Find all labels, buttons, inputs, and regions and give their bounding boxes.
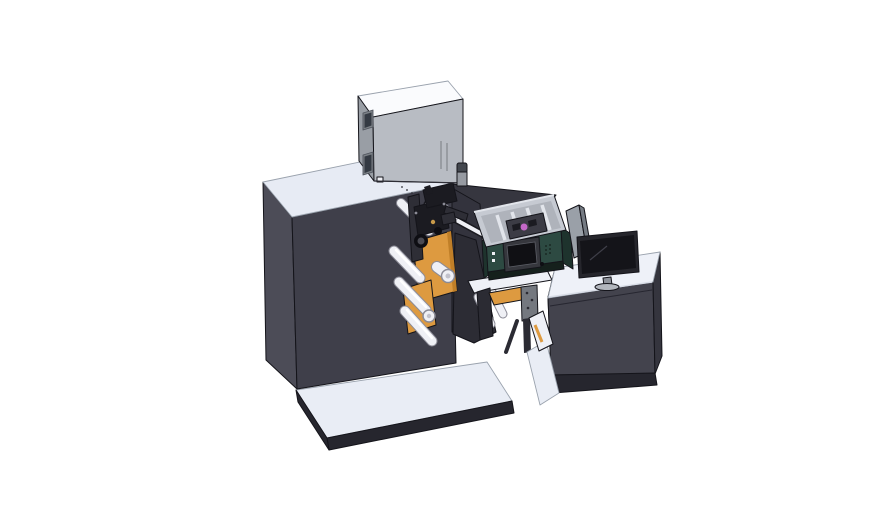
cabinet-window-glass-upper [365, 113, 372, 129]
mech-roller-hub [434, 227, 442, 235]
exhaust-cylinder-body [457, 172, 467, 186]
screw-dot [401, 186, 403, 188]
vent-dot [545, 249, 547, 251]
cad-viewport[interactable] [0, 0, 888, 522]
mech-dot [443, 203, 446, 206]
electrical-cabinet-box [358, 81, 467, 186]
cabinet-window-glass-lower [365, 155, 372, 174]
display-knob [540, 262, 544, 266]
cad-scene [0, 0, 888, 522]
roller-end-core [427, 314, 431, 318]
roller-end-core [446, 274, 451, 279]
bracket-hole [531, 299, 534, 302]
brass-fitting [431, 220, 435, 224]
vent-dot [545, 245, 547, 247]
monitor-base [595, 284, 619, 291]
unit-label-sticker [492, 252, 495, 255]
bracket-leg [523, 318, 531, 353]
screw-dot [411, 192, 413, 194]
magenta-ink-part [521, 224, 528, 231]
vent-dot [549, 244, 551, 246]
bracket-hole [526, 292, 529, 295]
mech-dot [415, 212, 418, 215]
monitor-screen [580, 235, 636, 274]
bracket-hole [527, 307, 530, 310]
vent-dot [545, 253, 547, 255]
vent-dot [549, 252, 551, 254]
screw-dot [406, 189, 408, 191]
mech-hub-inner [418, 238, 425, 245]
unit-label-sticker [492, 259, 495, 262]
marking-unit-display-screen [507, 242, 537, 267]
vent-dot [549, 248, 551, 250]
